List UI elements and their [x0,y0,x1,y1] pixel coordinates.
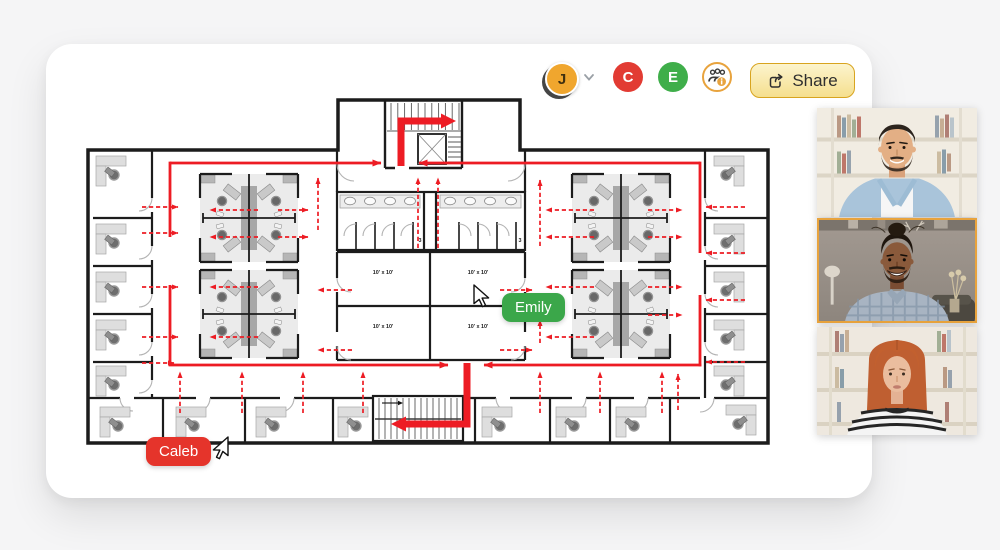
share-icon [767,72,785,90]
collaborator-avatar-c[interactable]: C [613,62,643,92]
remote-cursor-emily-pointer [472,284,496,310]
video-participant-1[interactable] [817,108,977,217]
video-participant-2-active-speaker[interactable] [817,218,977,323]
remote-cursor-emily-label: Emily [502,293,565,322]
collaborator-avatar-e[interactable]: E [658,62,688,92]
share-button[interactable]: Share [750,63,855,98]
collaborators-panel-button[interactable] [702,62,732,92]
user-avatar-initial: J [558,71,566,88]
collaborator-initial: C [623,69,634,86]
user-avatar[interactable]: J [545,62,579,96]
video-participant-3[interactable] [817,327,977,435]
chevron-down-icon[interactable] [582,70,596,84]
remote-cursor-caleb-label: Caleb [146,437,211,466]
collaborator-initial: E [668,69,678,86]
people-info-icon [707,67,728,88]
whiteboard-canvas[interactable] [46,44,872,498]
share-button-label: Share [792,71,837,91]
